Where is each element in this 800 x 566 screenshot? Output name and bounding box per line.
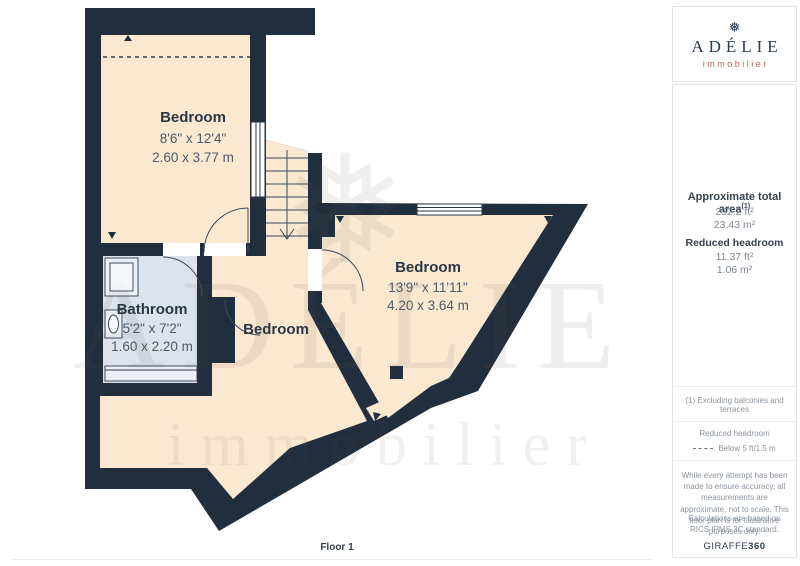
room-label-bathroom: Bathroom 5'2" x 7'2" 1.60 x 2.20 m bbox=[111, 301, 193, 354]
separator bbox=[673, 460, 796, 461]
total-area-m: 23.43 m² bbox=[673, 219, 796, 231]
room-label-bedroom-middle: Bedroom bbox=[243, 321, 309, 338]
giraffe360-name: GIRAFFE bbox=[703, 541, 748, 552]
snowflake-logo-icon: ❅ bbox=[729, 20, 741, 34]
floorplan-page: ❅ ADÉLIE immobilier bbox=[0, 0, 800, 566]
svg-text:1.60 x 2.20 m: 1.60 x 2.20 m bbox=[111, 339, 193, 354]
room-label-bedroom-right: Bedroom 13'9" x 11'11" 4.20 x 3.64 m bbox=[387, 259, 469, 313]
giraffe360-suffix: 360 bbox=[748, 541, 765, 552]
logo-tagline: immobilier bbox=[700, 59, 769, 69]
legend-title: Reduced headroom bbox=[673, 429, 796, 438]
sidebar: ❅ ADÉLIE immobilier Approximate total ar… bbox=[664, 0, 800, 566]
watermark-tagline: immobilier bbox=[167, 411, 603, 479]
svg-text:Bedroom: Bedroom bbox=[243, 321, 309, 338]
total-area-ft: 252.2 ft² bbox=[673, 206, 796, 218]
svg-text:5'2" x 7'2": 5'2" x 7'2" bbox=[122, 321, 181, 336]
legend-row: Below 5 ft/1.5 m bbox=[673, 444, 796, 453]
door-gap-bedroom-topleft bbox=[204, 243, 246, 256]
disclaimer-standard: Calculations are based on RICS IPMS 3C s… bbox=[673, 513, 796, 535]
window-stairwell bbox=[251, 122, 265, 197]
footnote-balconies: (1) Excluding balconies and terraces bbox=[673, 396, 796, 414]
floorplan-drawing: ❅ ADÉLIE immobilier bbox=[0, 0, 665, 566]
floor-label: Floor 1 bbox=[320, 542, 354, 553]
separator bbox=[673, 386, 796, 387]
floorplan-canvas: ❅ ADÉLIE immobilier bbox=[0, 0, 665, 566]
svg-text:8'6" x 12'4": 8'6" x 12'4" bbox=[160, 131, 227, 146]
separator bbox=[673, 421, 796, 422]
dashed-line-sample bbox=[693, 448, 713, 449]
svg-text:2.60 x 3.77 m: 2.60 x 3.77 m bbox=[152, 150, 234, 165]
reduced-headroom-m: 1.06 m² bbox=[673, 264, 796, 276]
info-card: Approximate total area(1) 252.2 ft² 23.4… bbox=[672, 84, 797, 558]
window-bedroom-right bbox=[417, 204, 482, 215]
column bbox=[390, 366, 403, 379]
svg-text:13'9" x 11'11": 13'9" x 11'11" bbox=[388, 280, 468, 295]
bathtub bbox=[105, 366, 197, 381]
svg-text:Bedroom: Bedroom bbox=[395, 259, 461, 276]
svg-text:4.20 x 3.64 m: 4.20 x 3.64 m bbox=[387, 298, 469, 313]
logo-brand: ADÉLIE bbox=[686, 37, 782, 57]
legend-label: Below 5 ft/1.5 m bbox=[718, 444, 775, 453]
room-label-bedroom-topleft: Bedroom 8'6" x 12'4" 2.60 x 3.77 m bbox=[152, 109, 234, 165]
svg-text:Bedroom: Bedroom bbox=[160, 109, 226, 126]
logo-card: ❅ ADÉLIE immobilier bbox=[672, 6, 797, 82]
svg-text:Bathroom: Bathroom bbox=[117, 301, 188, 318]
door-gap-bedroom-right bbox=[308, 249, 322, 291]
reduced-headroom-ft: 11.37 ft² bbox=[673, 251, 796, 263]
giraffe360-brand: GIRAFFE360 bbox=[673, 541, 796, 552]
reduced-headroom-title: Reduced headroom bbox=[673, 237, 796, 249]
door-gap-bathroom bbox=[163, 243, 200, 256]
bottom-rule bbox=[12, 559, 652, 560]
